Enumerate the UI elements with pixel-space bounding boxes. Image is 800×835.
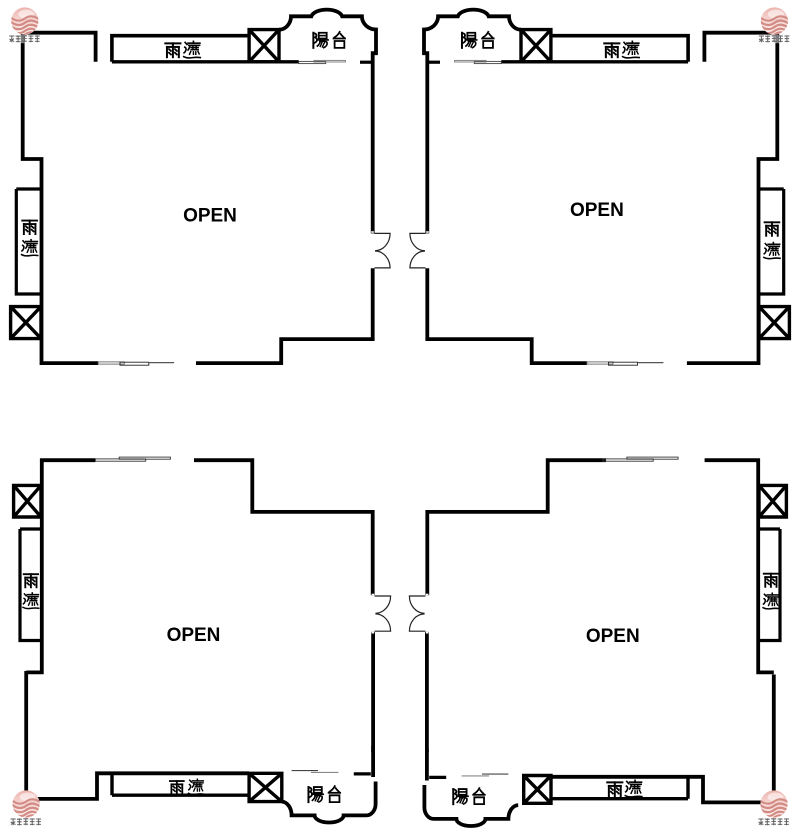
svg-text:OPEN: OPEN [167, 625, 221, 646]
svg-text:OPEN: OPEN [570, 200, 624, 221]
svg-text:OPEN: OPEN [586, 626, 640, 647]
svg-text:OPEN: OPEN [183, 205, 237, 226]
